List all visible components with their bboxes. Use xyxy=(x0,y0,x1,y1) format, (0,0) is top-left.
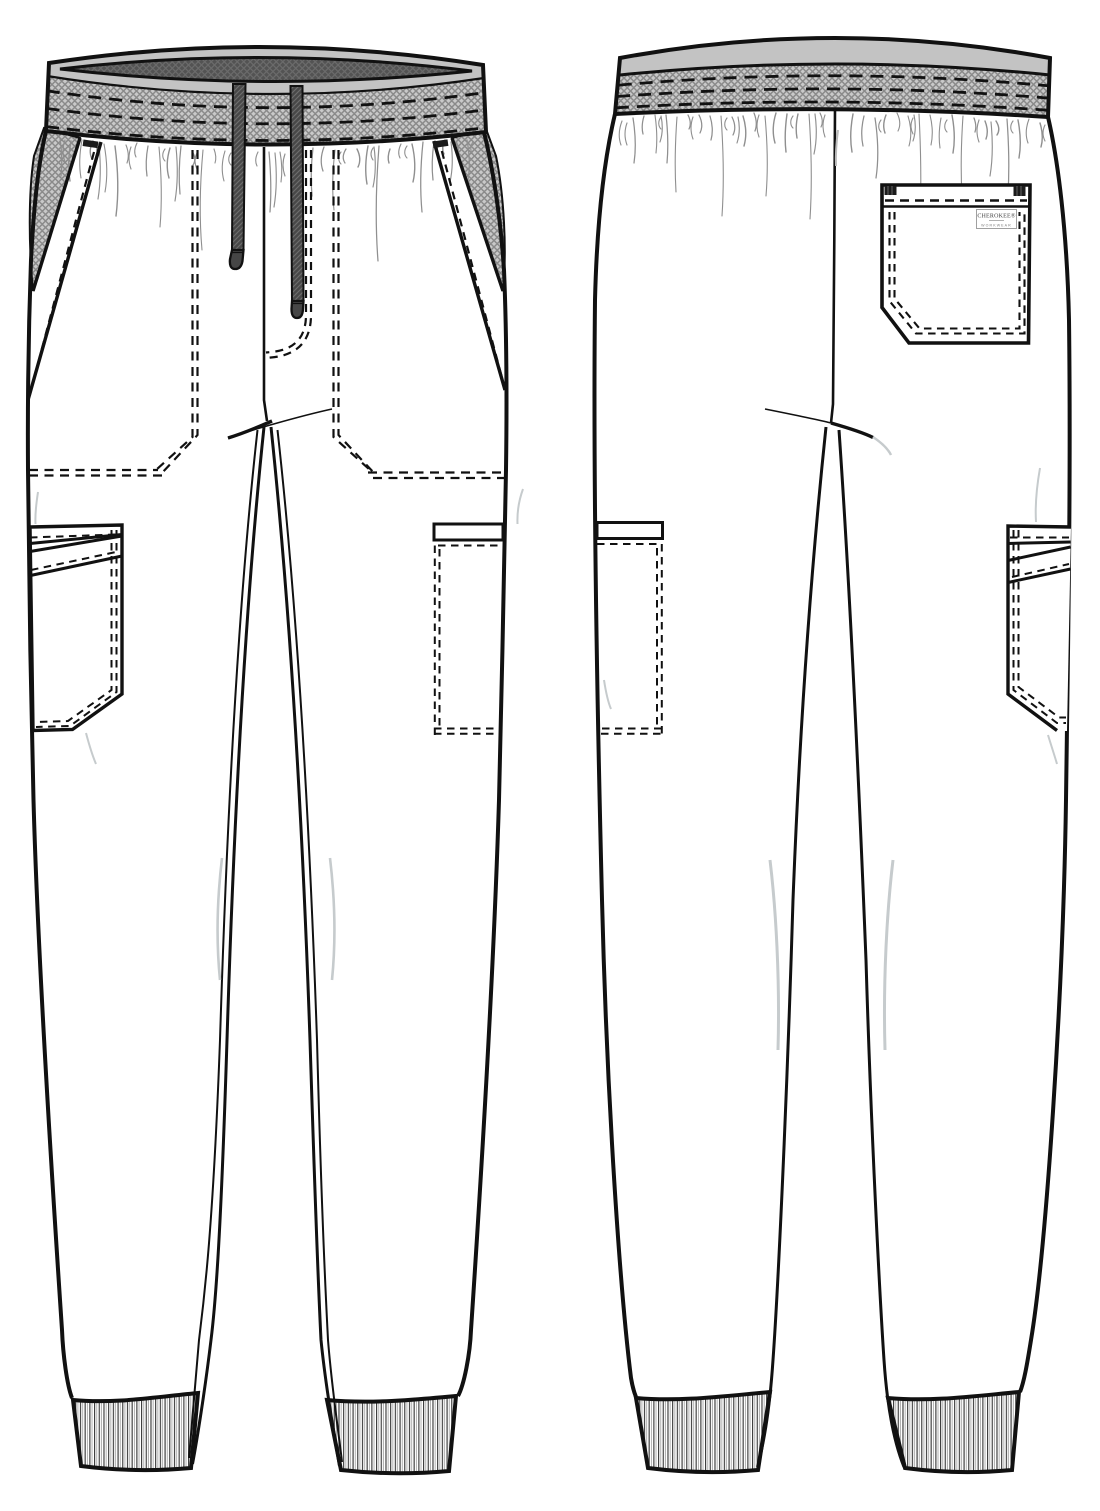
svg-text:CHEROKEE®: CHEROKEE® xyxy=(977,213,1016,220)
svg-text:WORKWEAR: WORKWEAR xyxy=(981,224,1012,228)
